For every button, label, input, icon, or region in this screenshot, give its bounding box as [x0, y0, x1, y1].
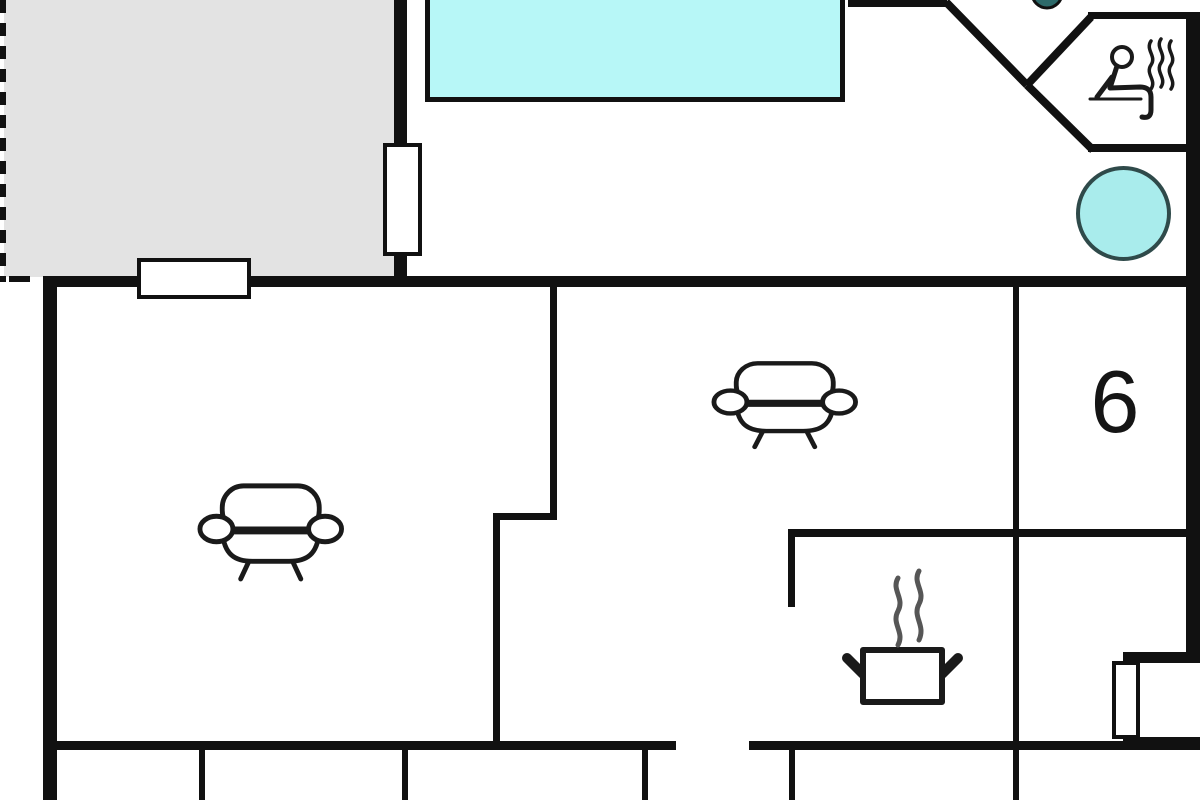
- cooking-pot-icon: [847, 571, 958, 702]
- round-table-icon: [1032, 0, 1062, 8]
- sofa-icon: [714, 363, 856, 447]
- wall: [1027, 17, 1091, 85]
- wall: [1027, 85, 1093, 150]
- pot-steam-icon: [917, 571, 921, 640]
- sauna-person-body: [1110, 66, 1151, 117]
- room-number-label: 6: [1060, 358, 1170, 446]
- wall: [946, 2, 1027, 85]
- sauna-steam-icon: [1149, 41, 1152, 89]
- sauna-person-head: [1112, 47, 1132, 67]
- sofa-icon: [200, 486, 342, 579]
- sauna-icon: [1090, 39, 1173, 117]
- pot-body: [863, 650, 942, 702]
- floor-plan: 6: [0, 0, 1200, 800]
- sauna-steam-icon: [1169, 41, 1172, 89]
- plan-icons-layer: [0, 0, 1200, 800]
- pot-steam-icon: [896, 578, 900, 645]
- sauna-steam-icon: [1159, 39, 1162, 87]
